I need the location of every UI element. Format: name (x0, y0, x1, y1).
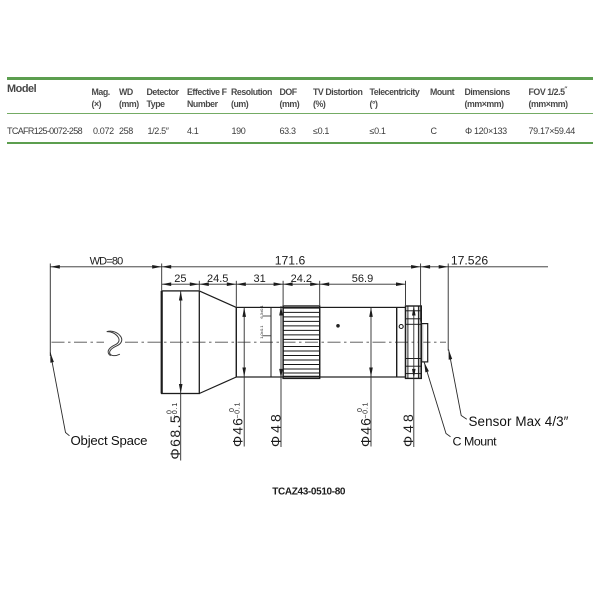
svg-text:Φ460−0.1: Φ460−0.1 (229, 402, 246, 447)
svg-text:C Mount: C Mount (453, 435, 498, 449)
svg-text:Φ48: Φ48 (400, 411, 416, 447)
svg-text:Φ48: Φ48 (267, 411, 283, 447)
svg-text:TCAZ43-0510-80: TCAZ43-0510-80 (272, 487, 346, 498)
svg-text:171.6: 171.6 (275, 253, 306, 267)
svg-text:6.3±0.1: 6.3±0.1 (259, 305, 264, 319)
svg-text:17.526: 17.526 (451, 253, 488, 267)
svg-text:24.2: 24.2 (291, 273, 312, 285)
svg-text:56.9: 56.9 (352, 273, 373, 285)
svg-text:25: 25 (174, 273, 186, 285)
svg-text:WD=80: WD=80 (90, 256, 123, 268)
svg-text:Sensor Max 4/3″: Sensor Max 4/3″ (469, 414, 569, 429)
svg-text:1.0±0.1: 1.0±0.1 (259, 325, 264, 339)
svg-text:24.5: 24.5 (207, 273, 228, 285)
svg-text:31: 31 (253, 273, 265, 285)
svg-text:Object Space: Object Space (71, 433, 148, 448)
